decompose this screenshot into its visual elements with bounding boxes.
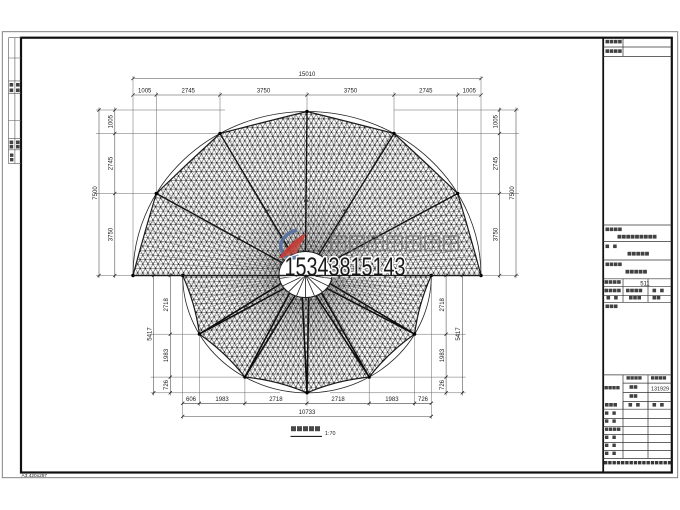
svg-text:5417: 5417 <box>456 327 462 341</box>
svg-text:2745: 2745 <box>419 89 433 95</box>
svg-text:2745: 2745 <box>493 156 499 170</box>
svg-text:1983: 1983 <box>440 348 446 362</box>
svg-text:726: 726 <box>164 379 170 390</box>
svg-text:1005: 1005 <box>109 114 115 128</box>
svg-text:3750: 3750 <box>109 227 115 241</box>
svg-text:726: 726 <box>418 397 429 403</box>
svg-text:1005: 1005 <box>138 89 152 95</box>
svg-text:1983: 1983 <box>215 397 229 403</box>
svg-text:1983: 1983 <box>164 348 170 362</box>
svg-text:2718: 2718 <box>164 297 170 311</box>
svg-text:1:70: 1:70 <box>325 431 336 437</box>
svg-text:1005: 1005 <box>463 89 477 95</box>
svg-text:606: 606 <box>186 397 197 403</box>
svg-text:2745: 2745 <box>182 89 196 95</box>
svg-text:2718: 2718 <box>269 397 283 403</box>
svg-text:1983: 1983 <box>385 397 399 403</box>
svg-text:3750: 3750 <box>257 89 271 95</box>
svg-text:726: 726 <box>440 379 446 390</box>
svg-text:131929: 131929 <box>651 386 669 392</box>
svg-text:3750: 3750 <box>344 89 358 95</box>
svg-text:15010: 15010 <box>299 72 316 78</box>
svg-text:2718: 2718 <box>331 397 345 403</box>
svg-text:2745: 2745 <box>109 156 115 170</box>
svg-text:7500: 7500 <box>93 186 99 200</box>
svg-text:3750: 3750 <box>493 227 499 241</box>
svg-text:10733: 10733 <box>299 410 316 416</box>
svg-text:15343815143: 15343815143 <box>285 252 406 282</box>
svg-text:2718: 2718 <box>440 297 446 311</box>
svg-text:A3.420x297: A3.420x297 <box>22 473 48 479</box>
svg-text:1005: 1005 <box>493 114 499 128</box>
svg-text:511: 511 <box>640 281 650 287</box>
svg-text:5417: 5417 <box>148 327 154 341</box>
svg-text:7500: 7500 <box>510 186 516 200</box>
